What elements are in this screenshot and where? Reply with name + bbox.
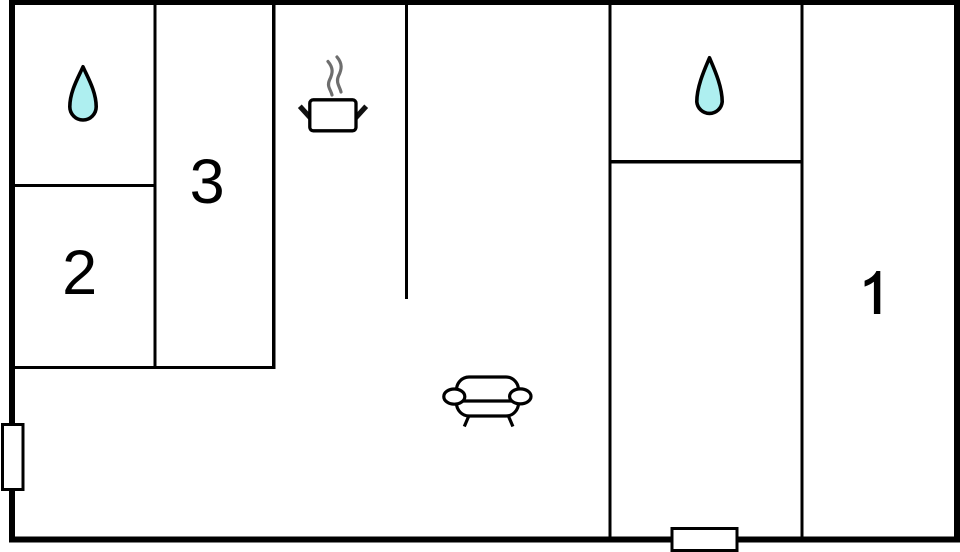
svg-text:2: 2 <box>62 238 97 308</box>
svg-text:3: 3 <box>190 147 225 217</box>
